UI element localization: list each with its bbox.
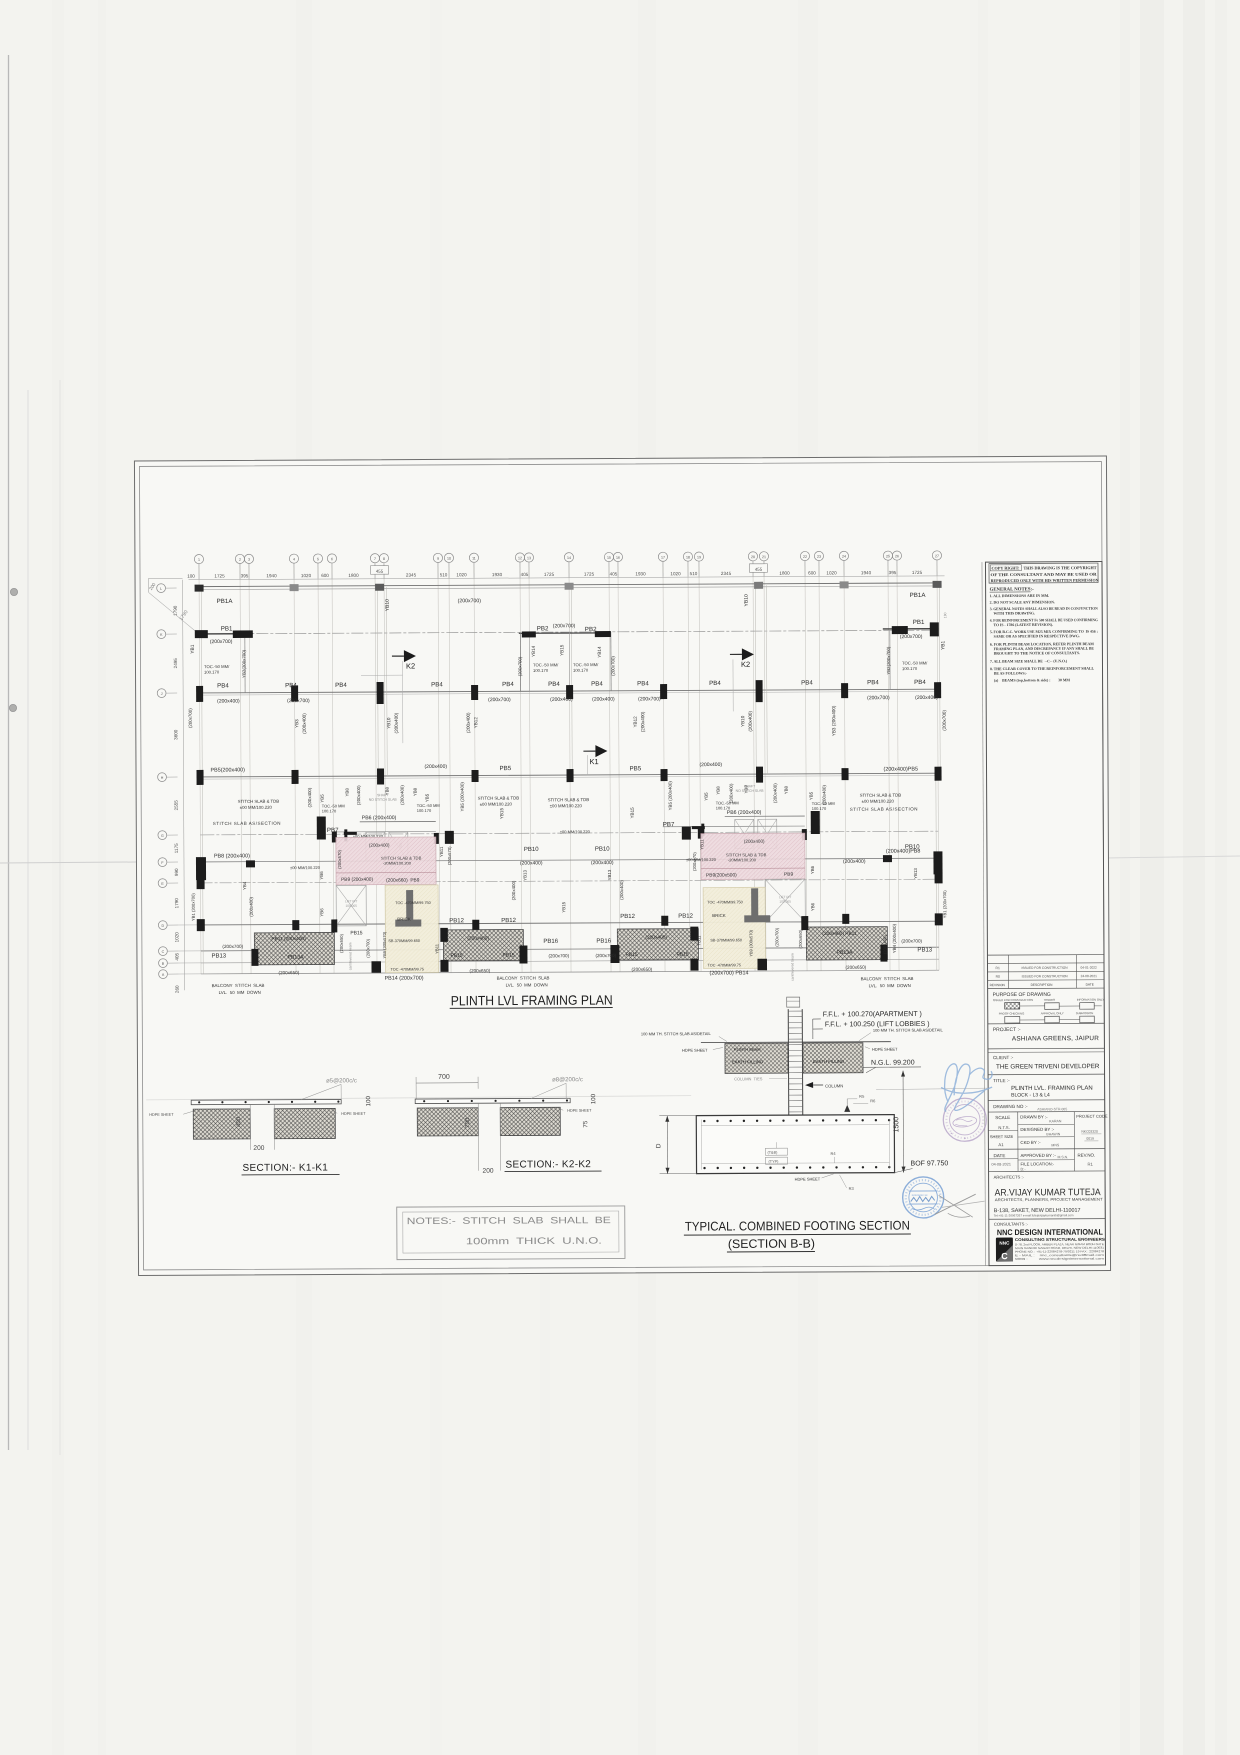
svg-text:YB10: YB10: [740, 715, 745, 727]
svg-text:(200x400): (200x400): [302, 713, 307, 734]
svg-text:(200x400) PB11: (200x400) PB11: [822, 931, 857, 937]
svg-text:YB6: YB6: [319, 871, 324, 880]
svg-text:6: 6: [331, 557, 333, 561]
svg-text:M.S.N.: M.S.N.: [1057, 1155, 1068, 1159]
svg-text:(200x700): (200x700): [222, 944, 243, 949]
svg-text:(200x700): (200x700): [638, 696, 661, 702]
svg-text:PB1A: PB1A: [217, 598, 234, 605]
svg-text:YB14: YB14: [531, 645, 536, 657]
svg-text:PB12: PB12: [678, 914, 693, 920]
svg-text:(200x700): (200x700): [548, 953, 569, 958]
svg-text:cantilevered beam: cantilevered beam: [790, 953, 794, 981]
svg-text:510: 510: [440, 572, 448, 577]
svg-text:(200x650): (200x650): [339, 933, 344, 952]
svg-text:STITCH SLAB & TDB: STITCH SLAB & TDB: [478, 796, 520, 801]
svg-text:(200x700): (200x700): [188, 708, 193, 728]
svg-text:(T&B): (T&B): [767, 1151, 778, 1155]
svg-text:(200x400): (200x400): [592, 697, 615, 703]
svg-text:(200x400): (200x400): [645, 935, 667, 941]
svg-text:D: D: [161, 924, 164, 928]
svg-text:YB14: YB14: [597, 646, 602, 658]
svg-text:ASHIANA GREENS, JAIPUR: ASHIANA GREENS, JAIPUR: [1012, 1035, 1099, 1042]
svg-text:21: 21: [762, 555, 766, 559]
svg-text:BROUGHT TO THE NOTICE OF CONSU: BROUGHT TO THE NOTICE OF CONSULTANTS.: [990, 651, 1080, 655]
svg-text:DATE: DATE: [993, 1153, 1005, 1158]
svg-text:100mm THICK U.N.O.: 100mm THICK U.N.O.: [466, 1236, 602, 1247]
svg-text:APPROVED BY :-: APPROVED BY :-: [1020, 1153, 1056, 1158]
svg-text:EARTH FILLING: EARTH FILLING: [813, 1059, 844, 1064]
svg-text:SUBMISSION: SUBMISSION: [1076, 1011, 1094, 1015]
svg-text:22: 22: [803, 555, 807, 559]
svg-text:BHAWIN: BHAWIN: [1046, 1132, 1060, 1136]
svg-text:PB12: PB12: [501, 918, 516, 924]
svg-text:(200x700): (200x700): [210, 639, 233, 645]
svg-text:04-08-2021: 04-08-2021: [992, 1163, 1011, 1167]
svg-text:7. ALL BEAM SIZE SHALL BE --C: 7. ALL BEAM SIZE SHALL BE --C-- (U.N.O.): [990, 659, 1068, 663]
svg-text:PB2: PB2: [537, 625, 549, 632]
svg-text:TOC -470MM/99.75: TOC -470MM/99.75: [391, 967, 425, 971]
svg-text:PB7: PB7: [327, 827, 339, 834]
svg-text:600: 600: [321, 573, 329, 578]
svg-text:PB4: PB4: [591, 681, 603, 688]
svg-text:ø8@200c/c: ø8@200c/c: [552, 1077, 583, 1083]
svg-text:100.170: 100.170: [573, 668, 589, 673]
svg-text:YB11: YB11: [696, 935, 701, 946]
svg-text:2495: 2495: [173, 658, 178, 669]
svg-text:K2: K2: [406, 662, 415, 671]
svg-text:PB12: PB12: [449, 918, 464, 924]
svg-text:PROJECT CODE: PROJECT CODE: [1076, 1114, 1108, 1119]
svg-text:(200x700): (200x700): [488, 697, 511, 703]
svg-text:(200x400): (200x400): [591, 860, 614, 866]
svg-text:TOC.-50 MM/: TOC.-50 MM/: [573, 662, 599, 667]
svg-text:PB10: PB10: [524, 847, 539, 853]
svg-text:9: 9: [437, 557, 439, 561]
svg-text:LIFT PIT: LIFT PIT: [779, 895, 791, 899]
svg-text:YB5: YB5: [809, 791, 814, 800]
svg-text:(200x400): (200x400): [550, 697, 573, 703]
svg-text:YB9 (300x570): YB9 (300x570): [748, 929, 753, 956]
svg-text:100 MM TH. STITCH SLAB AS/DETA: 100 MM TH. STITCH SLAB AS/DETAIL: [641, 1031, 712, 1036]
svg-text:(200x400): (200x400): [882, 935, 887, 954]
svg-text:TO IS - 1786 (LATEST REVISION): TO IS - 1786 (LATEST REVISION).: [990, 623, 1053, 627]
svg-text:NO STITCH SLAB: NO STITCH SLAB: [369, 798, 398, 802]
svg-text:YB9 (300x570): YB9 (300x570): [382, 931, 387, 958]
svg-text:K2: K2: [741, 660, 750, 669]
svg-text:PB10: PB10: [905, 844, 920, 850]
svg-text:±00 MM/100.220: ±00 MM/100.220: [862, 799, 895, 804]
svg-text:YB5: YB5: [704, 792, 709, 801]
svg-text:THE GREEN TRIVENI DEVELOPER: THE GREEN TRIVENI DEVELOPER: [996, 1063, 1100, 1071]
svg-text:PLINTH BEAM: PLINTH BEAM: [734, 1047, 761, 1052]
svg-text:N.T.S.: N.T.S.: [998, 1125, 1009, 1130]
svg-text:(200x700): (200x700): [458, 598, 482, 604]
svg-text:REPRODUCED ONLY WITH HIS WRITT: REPRODUCED ONLY WITH HIS WRITTEN PERMISS…: [991, 578, 1099, 584]
svg-text:YB1 (200x700): YB1 (200x700): [942, 890, 947, 919]
svg-text:260: 260: [175, 985, 180, 993]
svg-text:PB2: PB2: [585, 626, 597, 633]
svg-text:75: 75: [582, 1120, 589, 1127]
svg-text:NO STITCH SLAB: NO STITCH SLAB: [736, 789, 765, 793]
svg-text:CLIENT :-: CLIENT :-: [993, 1055, 1014, 1060]
svg-text:YB6: YB6: [810, 902, 815, 911]
svg-text:YB15: YB15: [499, 808, 504, 820]
svg-text:1175: 1175: [174, 843, 179, 853]
svg-text:PB15: PB15: [502, 953, 514, 959]
svg-text:100.170: 100.170: [812, 806, 827, 811]
svg-text:14: 14: [567, 556, 571, 560]
svg-text:1500: 1500: [893, 1117, 900, 1133]
svg-text:R1: R1: [1088, 1162, 1094, 1167]
svg-text:(200x570): (200x570): [692, 852, 697, 871]
svg-text:THIS DRAWING IS THE COPYRIGHT: THIS DRAWING IS THE COPYRIGHT: [1023, 565, 1096, 570]
svg-text:(200x400): (200x400): [619, 880, 624, 900]
svg-text:3. GENERAL NOTES SHALL ALSO BE: 3. GENERAL NOTES SHALL ALSO BE READ IN C…: [990, 607, 1098, 612]
svg-text:YB3 (200x400): YB3 (200x400): [831, 705, 836, 736]
svg-text:8: 8: [383, 557, 385, 561]
svg-text:YB13: YB13: [523, 870, 528, 881]
svg-text:YB5: YB5: [425, 793, 430, 802]
svg-text:PB14 (200x700): PB14 (200x700): [385, 975, 424, 981]
svg-text:±00 MM/100.220: ±00 MM/100.220: [480, 802, 513, 807]
svg-text:DESCRIPTION: DESCRIPTION: [1031, 983, 1054, 987]
svg-text:REV.NO.: REV.NO.: [1077, 1153, 1095, 1158]
svg-text:DATE: DATE: [1086, 983, 1094, 987]
svg-text:(200x400): (200x400): [369, 843, 390, 848]
svg-text:PB4: PB4: [637, 680, 649, 687]
svg-text:(200x400): (200x400): [400, 785, 405, 805]
svg-text:(a) BEAMS (top,bottom & sid: (a) BEAMS (top,bottom & side) : 30 MM: [990, 678, 1070, 682]
svg-text:PB11 (200x400): PB11 (200x400): [271, 936, 306, 942]
svg-text:SB-370MM/99.650: SB-370MM/99.650: [388, 939, 420, 943]
svg-text:200: 200: [483, 1168, 494, 1175]
svg-text:(200x700): (200x700): [900, 634, 923, 640]
svg-text:455: 455: [376, 569, 384, 574]
svg-text:12: 12: [518, 556, 522, 560]
svg-text:(200x400): (200x400): [356, 785, 361, 805]
svg-text:600: 600: [808, 571, 816, 576]
svg-text:PB6 (200x400): PB6 (200x400): [727, 810, 762, 816]
svg-text:ISSUED FOR CONSTRUCTION: ISSUED FOR CONSTRUCTION: [993, 998, 1033, 1002]
svg-text:YB8: YB8: [784, 785, 789, 794]
svg-text:(200x650): (200x650): [798, 929, 803, 948]
svg-text:3600: 3600: [173, 729, 178, 740]
svg-text:YB15: YB15: [630, 807, 635, 819]
svg-text:24-08-2021: 24-08-2021: [1081, 974, 1098, 978]
svg-text:(200x700): (200x700): [287, 698, 310, 704]
svg-text:200: 200: [253, 1145, 264, 1152]
svg-text:YB8: YB8: [345, 788, 350, 797]
svg-text:1800: 1800: [779, 571, 790, 576]
svg-text:2: 2: [239, 558, 241, 562]
svg-text:17: 17: [661, 556, 665, 560]
svg-text:2345: 2345: [721, 571, 732, 576]
svg-text:ARCHITECTS :-: ARCHITECTS :-: [994, 1174, 1025, 1179]
svg-text:HDPE SHEET: HDPE SHEET: [341, 1112, 366, 1116]
svg-text:20: 20: [751, 555, 755, 559]
svg-text:27: 27: [935, 554, 939, 558]
svg-text:PB13: PB13: [917, 947, 932, 953]
svg-text:INFORMATION ONLY: INFORMATION ONLY: [1077, 998, 1105, 1002]
svg-text:11: 11: [472, 557, 476, 561]
svg-text:YB11: YB11: [439, 846, 444, 857]
svg-text:1020: 1020: [456, 572, 467, 577]
svg-text:cantilevered beam: cantilevered beam: [348, 942, 352, 970]
svg-text:(200x700): (200x700): [365, 938, 370, 957]
svg-text:PB13A: PB13A: [836, 950, 853, 956]
svg-text:PLINTH LVL. FRAMING PLAN: PLINTH LVL. FRAMING PLAN: [1011, 1086, 1093, 1092]
svg-text:0019: 0019: [1086, 1137, 1094, 1141]
svg-text:510: 510: [690, 571, 698, 576]
svg-text:YB3: YB3: [294, 719, 299, 728]
svg-text:BALCONY STITCH SLAB: BALCONY STITCH SLAB: [212, 983, 265, 988]
svg-text:700: 700: [464, 1117, 471, 1128]
svg-text:DESIGNED BY :-: DESIGNED BY :-: [1020, 1127, 1054, 1132]
svg-text:YB10: YB10: [744, 594, 750, 606]
svg-text:R0: R0: [996, 975, 1000, 979]
svg-text:10: 10: [447, 557, 451, 561]
svg-text:(200x700): (200x700): [595, 953, 616, 958]
svg-text:1940: 1940: [861, 570, 872, 575]
svg-text:(200x700) PB14: (200x700) PB14: [710, 970, 749, 976]
svg-text:YB1 (200x700): YB1 (200x700): [191, 893, 196, 922]
svg-text:SHEET SIZE: SHEET SIZE: [990, 1134, 1014, 1139]
svg-text:1800: 1800: [348, 573, 359, 578]
svg-text:STITCH SLAB & TDB: STITCH SLAB & TDB: [860, 793, 902, 798]
svg-text:DRAWN BY :-: DRAWN BY :-: [1020, 1114, 1048, 1119]
svg-text:TENDER: TENDER: [1044, 998, 1056, 1002]
svg-text:PB6 (200x400): PB6 (200x400): [362, 815, 397, 821]
svg-text:PB12: PB12: [620, 914, 635, 920]
svg-text:15: 15: [607, 556, 611, 560]
svg-text:(200x650): (200x650): [279, 970, 300, 975]
svg-text:LVL. 50 MM DOWN: LVL. 50 MM DOWN: [506, 982, 548, 987]
svg-text:BRICK: BRICK: [397, 917, 411, 922]
svg-text:YB10: YB10: [386, 717, 391, 729]
svg-text:(200x400): (200x400): [424, 764, 447, 770]
svg-text:(200x400): (200x400): [307, 787, 312, 807]
svg-text:YB5 (200x400): YB5 (200x400): [460, 782, 465, 812]
svg-text:(SECTION B-B): (SECTION B-B): [728, 1237, 815, 1251]
svg-text:BALCONY STITCH SLAB: BALCONY STITCH SLAB: [497, 975, 550, 980]
svg-text:04-01-2022: 04-01-2022: [1081, 966, 1098, 970]
svg-text:(200x400): (200x400): [748, 711, 753, 732]
svg-text:1725: 1725: [544, 572, 555, 577]
svg-text:KARAN: KARAN: [1049, 1119, 1062, 1123]
svg-text:PB4: PB4: [709, 680, 721, 687]
svg-text:(200x700): (200x700): [774, 927, 779, 946]
svg-text:±00 MM/100.220: ±00 MM/100.220: [550, 803, 583, 808]
svg-text:PB5: PB5: [499, 765, 511, 772]
svg-text:SHAFT: SHAFT: [377, 793, 388, 797]
svg-text:±00 MM/100.220: ±00 MM/100.220: [240, 805, 273, 810]
svg-text:SECTION:- K1-K1: SECTION:- K1-K1: [242, 1162, 328, 1173]
svg-text:PB15: PB15: [676, 952, 688, 958]
svg-text:K1: K1: [589, 757, 598, 766]
svg-text:ASHIANO-STR-005: ASHIANO-STR-005: [1037, 1107, 1067, 1111]
svg-text:PROOF CHECKING: PROOF CHECKING: [999, 1011, 1025, 1015]
svg-text:(200x400): (200x400): [511, 880, 516, 900]
svg-text:PB16: PB16: [543, 939, 558, 945]
svg-text:PB16: PB16: [596, 939, 611, 945]
svg-text:TOC -470MM/99.750: TOC -470MM/99.750: [395, 901, 431, 905]
svg-text:1725: 1725: [584, 572, 595, 577]
svg-text:SCALE: SCALE: [995, 1115, 1010, 1120]
svg-text:23: 23: [817, 555, 821, 559]
svg-text:(200x650): (200x650): [632, 967, 653, 972]
svg-text:APPROVAL ONLY: APPROVAL ONLY: [1041, 1011, 1064, 1015]
svg-text:LIFT PIT: LIFT PIT: [345, 899, 357, 903]
svg-text:HDPE SHEET: HDPE SHEET: [682, 1048, 708, 1053]
svg-text:ARCHITECTS, PLANNERS, PROJECT: ARCHITECTS, PLANNERS, PROJECT MANAGEMENT: [995, 1197, 1104, 1203]
svg-text:PB4: PB4: [914, 679, 926, 686]
svg-text:PB7: PB7: [663, 821, 675, 828]
svg-text:8. THE CLEAR COVER TO THE REIN: 8. THE CLEAR COVER TO THE REINFORCEMENT …: [990, 667, 1094, 672]
svg-text:(200x400): (200x400): [640, 711, 645, 732]
svg-text:1940: 1940: [266, 573, 277, 578]
svg-text:BE AS FOLLOWS:-: BE AS FOLLOWS:-: [990, 671, 1028, 675]
svg-text:1020: 1020: [174, 932, 179, 943]
svg-text:FILE LOCATION:-: FILE LOCATION:-: [1021, 1161, 1055, 1166]
svg-text:(200x660) PB9: (200x660) PB9: [386, 878, 420, 884]
svg-text:H: H: [161, 776, 164, 780]
svg-text:CKD BY :-: CKD BY :-: [1020, 1140, 1041, 1145]
svg-text:1725: 1725: [214, 573, 225, 578]
svg-text:(200x570): (200x570): [337, 849, 342, 868]
svg-text:C: C: [162, 950, 165, 954]
svg-text:2555: 2555: [174, 800, 179, 811]
svg-text:100: 100: [187, 574, 195, 579]
svg-text:18: 18: [686, 555, 690, 559]
svg-text:PB10: PB10: [595, 847, 610, 853]
svg-text:(200x400)PB5: (200x400)PB5: [884, 766, 918, 772]
svg-text:HDPE SHEET: HDPE SHEET: [567, 1109, 592, 1113]
svg-text:(200x400): (200x400): [729, 783, 734, 803]
svg-text:(200x700): (200x700): [517, 656, 522, 676]
svg-text:100.065: 100.065: [779, 900, 791, 904]
svg-text:COLUMN TIES: COLUMN TIES: [734, 1076, 763, 1081]
svg-text:TITLE :-: TITLE :-: [993, 1078, 1010, 1083]
svg-text:F.F.L. + 100.270(APARTMENT ): F.F.L. + 100.270(APARTMENT ): [823, 1011, 922, 1019]
svg-text:Tel:+91-11-26967267 e-mail:tut: Tel:+91-11-26967267 e-mail:tutejavijayku…: [994, 1213, 1074, 1217]
svg-text:405: 405: [174, 952, 179, 960]
svg-text:2345: 2345: [406, 573, 417, 578]
svg-text:PB15: PB15: [450, 953, 462, 959]
svg-text:-20MM/100.200: -20MM/100.200: [383, 861, 412, 866]
svg-text:MNS: MNS: [1051, 1143, 1059, 1147]
svg-text:SECTION:- K2-K2: SECTION:- K2-K2: [505, 1159, 591, 1170]
svg-text:1020: 1020: [826, 570, 837, 575]
svg-text:1. ALL DIMENSIONS ARE IN MM.: 1. ALL DIMENSIONS ARE IN MM.: [990, 594, 1050, 598]
svg-text:455: 455: [755, 567, 763, 572]
svg-text:100.170: 100.170: [417, 808, 432, 813]
svg-text:YB2(200x700): YB2(200x700): [886, 646, 891, 675]
svg-text:YB6: YB6: [810, 865, 815, 874]
svg-text:(200x400): (200x400): [520, 860, 543, 866]
svg-text:YB4 (200x400): YB4 (200x400): [892, 923, 897, 953]
svg-text:STITCH SLAB & TDB: STITCH SLAB & TDB: [548, 797, 590, 802]
svg-text:YB5 (200x400): YB5 (200x400): [668, 781, 673, 811]
svg-text:PB9 (200x400): PB9 (200x400): [341, 877, 373, 883]
svg-text:DRAWING NO :-: DRAWING NO :-: [993, 1104, 1028, 1109]
svg-text:REVISION: REVISION: [990, 983, 1006, 987]
svg-text:STITCH SLAB AS/SECTION: STITCH SLAB AS/SECTION: [213, 821, 281, 826]
svg-text:100.170: 100.170: [533, 668, 549, 673]
svg-text:(200x400): (200x400): [773, 783, 778, 803]
svg-text:YB1: YB1: [940, 640, 946, 649]
svg-text:19: 19: [697, 555, 701, 559]
svg-text:R6: R6: [870, 1098, 876, 1103]
svg-text:±00 MM/100.220: ±00 MM/100.220: [686, 857, 717, 862]
svg-text:R4: R4: [830, 1151, 836, 1156]
svg-text:(200x700): (200x700): [942, 710, 947, 731]
svg-text:190: 190: [943, 612, 947, 618]
svg-text:PB15: PB15: [625, 952, 637, 958]
svg-text:1725: 1725: [912, 570, 923, 575]
svg-text:A1: A1: [998, 1142, 1004, 1147]
svg-text:±00 MM/100.220: ±00 MM/100.220: [560, 829, 591, 834]
svg-text:YB12: YB12: [473, 717, 478, 729]
svg-text:YB15: YB15: [561, 901, 566, 912]
svg-text:13: 13: [527, 556, 531, 560]
svg-text:(200x700): (200x700): [610, 656, 615, 676]
svg-text:1790: 1790: [174, 898, 179, 909]
svg-text:ISSUED FOR CONSTRUCTION: ISSUED FOR CONSTRUCTION: [1022, 974, 1069, 978]
svg-text:PB4: PB4: [217, 682, 229, 689]
svg-text:2. DO NOT SCALE ANY DIMENSION.: 2. DO NOT SCALE ANY DIMENSION.: [990, 600, 1055, 604]
svg-text:PB1A: PB1A: [910, 592, 927, 599]
svg-text:COLUMN: COLUMN: [825, 1083, 843, 1088]
svg-text:D: D: [655, 1143, 662, 1148]
svg-text:(200x400): (200x400): [822, 785, 827, 805]
svg-text:(200x400): (200x400): [843, 859, 866, 865]
svg-text:16: 16: [616, 556, 620, 560]
svg-text:100.170: 100.170: [204, 670, 220, 675]
svg-text:PB5: PB5: [629, 765, 641, 772]
svg-text:COPY RIGHT:: COPY RIGHT:: [991, 565, 1020, 570]
svg-text:NOTES:- STITCH SLAB SHALL: NOTES:- STITCH SLAB SHALL BE: [407, 1215, 611, 1226]
svg-text:YB13: YB13: [607, 869, 612, 880]
svg-text:BRICK: BRICK: [712, 913, 726, 918]
svg-text:1020: 1020: [670, 571, 681, 576]
svg-text:24: 24: [842, 555, 846, 559]
svg-text:25: 25: [886, 554, 890, 558]
svg-text:(200x400): (200x400): [249, 896, 254, 916]
svg-text:100: 100: [365, 1096, 372, 1107]
svg-text:PB4: PB4: [548, 681, 560, 688]
svg-text:YB15: YB15: [559, 644, 564, 656]
svg-text:PB4: PB4: [285, 682, 297, 689]
svg-text:PB1: PB1: [221, 625, 233, 632]
svg-text:C: C: [1001, 1251, 1008, 1261]
svg-text:(200x570): (200x570): [447, 846, 452, 865]
svg-text:HDPE SHEET: HDPE SHEET: [795, 1176, 821, 1181]
svg-text:100.065: 100.065: [345, 904, 357, 908]
svg-text:OF THE CONSULTANT AND MAY BE U: OF THE CONSULTANT AND MAY BE USED OR: [991, 572, 1098, 578]
svg-text:SB-370MM/99.650: SB-370MM/99.650: [710, 938, 742, 942]
svg-text:ISSUED FOR CONSTRUCTION: ISSUED FOR CONSTRUCTION: [1022, 966, 1069, 970]
svg-text:-20MM/100.200: -20MM/100.200: [728, 857, 757, 862]
svg-text:YB11: YB11: [434, 943, 439, 954]
svg-text:R1: R1: [996, 966, 1000, 970]
svg-text:(200x400): (200x400): [217, 698, 240, 704]
svg-text:395: 395: [889, 570, 897, 575]
svg-text:HDPE SHEET: HDPE SHEET: [149, 1113, 174, 1117]
svg-text:700: 700: [438, 1074, 450, 1081]
svg-text:100.170: 100.170: [322, 808, 337, 813]
svg-text:1930: 1930: [492, 572, 503, 577]
svg-text:YB5: YB5: [320, 794, 325, 803]
